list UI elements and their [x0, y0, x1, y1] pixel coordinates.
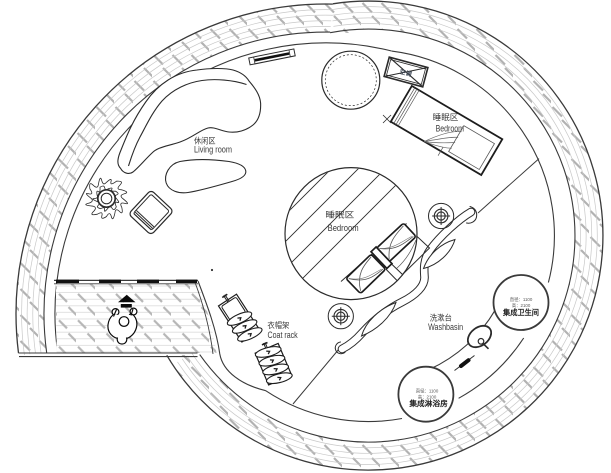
svg-text:直径：1100: 直径：1100	[510, 296, 533, 302]
svg-text:集成淋浴房: 集成淋浴房	[408, 398, 448, 408]
svg-text:Washbasin: Washbasin	[428, 322, 463, 332]
svg-text:直径：1100: 直径：1100	[416, 388, 439, 394]
svg-text:衣帽架: 衣帽架	[267, 320, 289, 330]
svg-text:Coat rack: Coat rack	[268, 330, 299, 340]
svg-text:Bedroom: Bedroom	[436, 123, 464, 133]
svg-text:Bedroom: Bedroom	[328, 223, 359, 233]
svg-text:睡眠区: 睡眠区	[325, 211, 354, 220]
svg-text:Living room: Living room	[194, 144, 232, 154]
svg-text:集成卫生间: 集成卫生间	[502, 307, 539, 317]
svg-text:洗漱台: 洗漱台	[430, 312, 452, 322]
svg-text:睡眠区: 睡眠区	[433, 113, 459, 122]
